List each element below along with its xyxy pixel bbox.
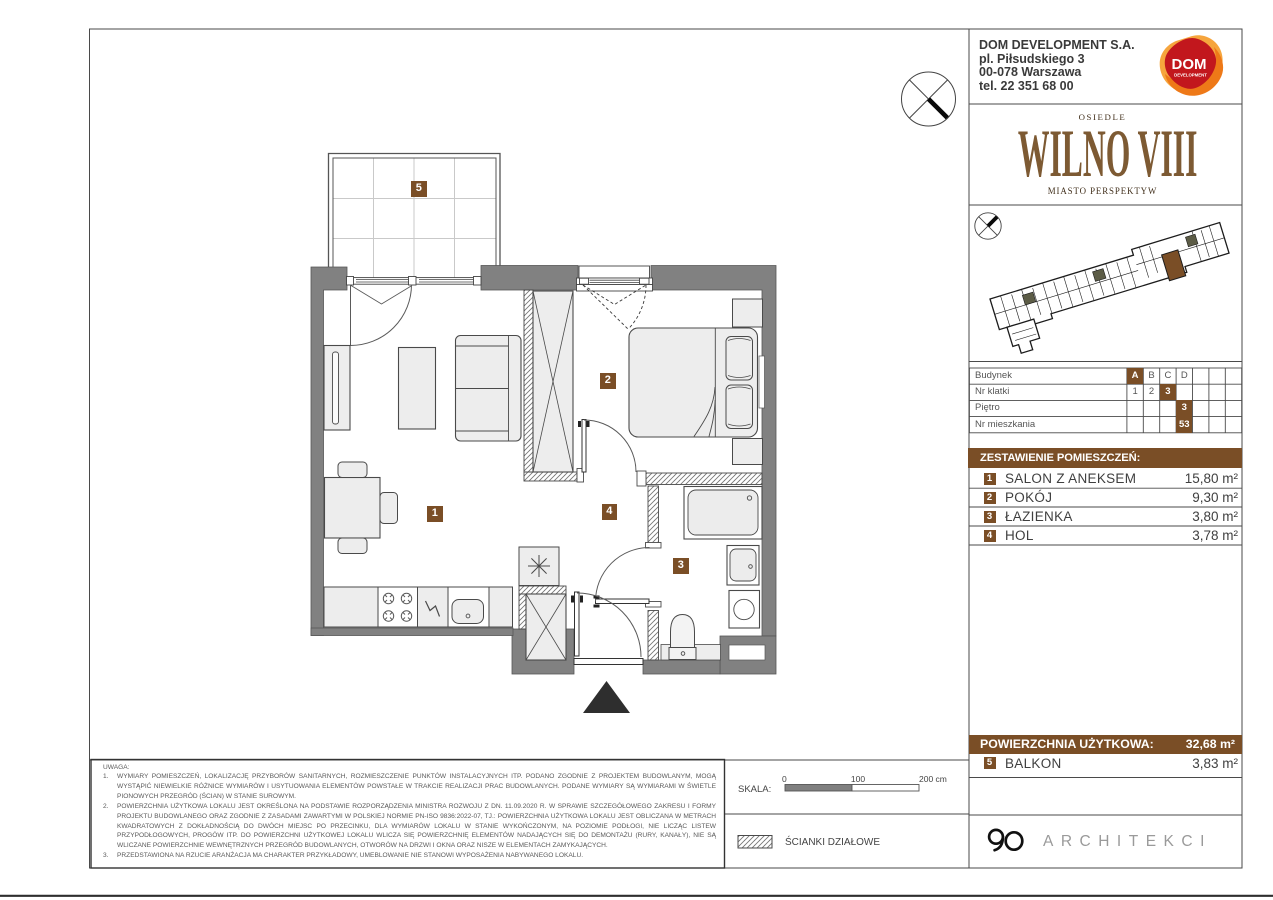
svg-text:DOM: DOM bbox=[1172, 56, 1207, 73]
svg-text:DEVELOPMENT: DEVELOPMENT bbox=[1174, 73, 1207, 78]
